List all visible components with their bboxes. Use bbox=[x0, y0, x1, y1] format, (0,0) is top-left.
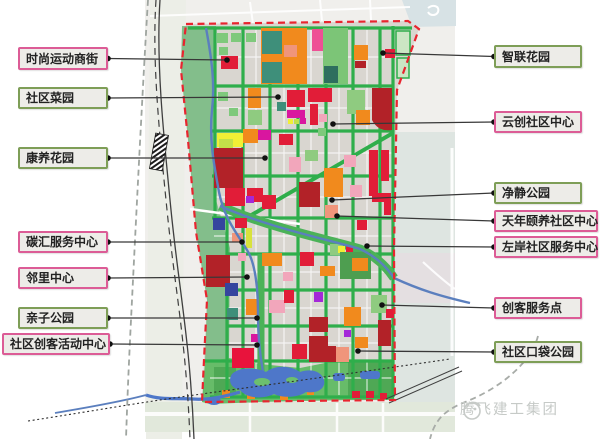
builder-group-logo-icon bbox=[460, 398, 484, 422]
box-dot-senior-wellness-community-center bbox=[491, 218, 497, 224]
box-dot-quiet-park bbox=[491, 190, 497, 196]
map-dot-neighborhood-center bbox=[244, 274, 250, 280]
map-dot-quiet-park bbox=[329, 197, 335, 203]
master-plan-map bbox=[0, 0, 600, 439]
map-dot-community-garden bbox=[275, 94, 281, 100]
box-dot-smart-link-garden bbox=[491, 54, 497, 60]
box-dot-left-bank-community-service-center bbox=[491, 244, 497, 250]
box-dot-parent-child-park bbox=[105, 315, 111, 321]
box-dot-community-garden bbox=[105, 95, 111, 101]
map-dot-smart-link-garden bbox=[380, 50, 386, 56]
map-dot-maker-service-point bbox=[379, 302, 385, 308]
box-dot-wellness-garden bbox=[105, 155, 111, 161]
map-dot-carbon-service-center bbox=[239, 239, 245, 245]
map-dot-senior-wellness-community-center bbox=[334, 213, 340, 219]
master-plan-page: 时尚运动商街社区菜园康养花园碳汇服务中心邻里中心亲子公园社区创客活动中心智联花园… bbox=[0, 0, 600, 439]
map-dot-left-bank-community-service-center bbox=[364, 243, 370, 249]
map-dot-parent-child-park bbox=[254, 315, 260, 321]
box-dot-maker-service-point bbox=[491, 305, 497, 311]
map-dot-community-pocket-park bbox=[355, 348, 361, 354]
box-dot-neighborhood-center bbox=[105, 275, 111, 281]
map-dot-fashion-sports-street bbox=[224, 57, 230, 63]
box-dot-fashion-sports-street bbox=[105, 56, 111, 62]
map-dot-cloud-maker-community-center bbox=[330, 121, 336, 127]
box-dot-community-pocket-park bbox=[491, 349, 497, 355]
box-dot-community-maker-activity-center bbox=[107, 341, 113, 347]
map-dot-wellness-garden bbox=[262, 155, 268, 161]
map-dot-community-maker-activity-center bbox=[254, 342, 260, 348]
watermark: 腾飞建工集团 bbox=[460, 398, 559, 419]
box-dot-carbon-service-center bbox=[105, 239, 111, 245]
box-dot-cloud-maker-community-center bbox=[491, 119, 497, 125]
